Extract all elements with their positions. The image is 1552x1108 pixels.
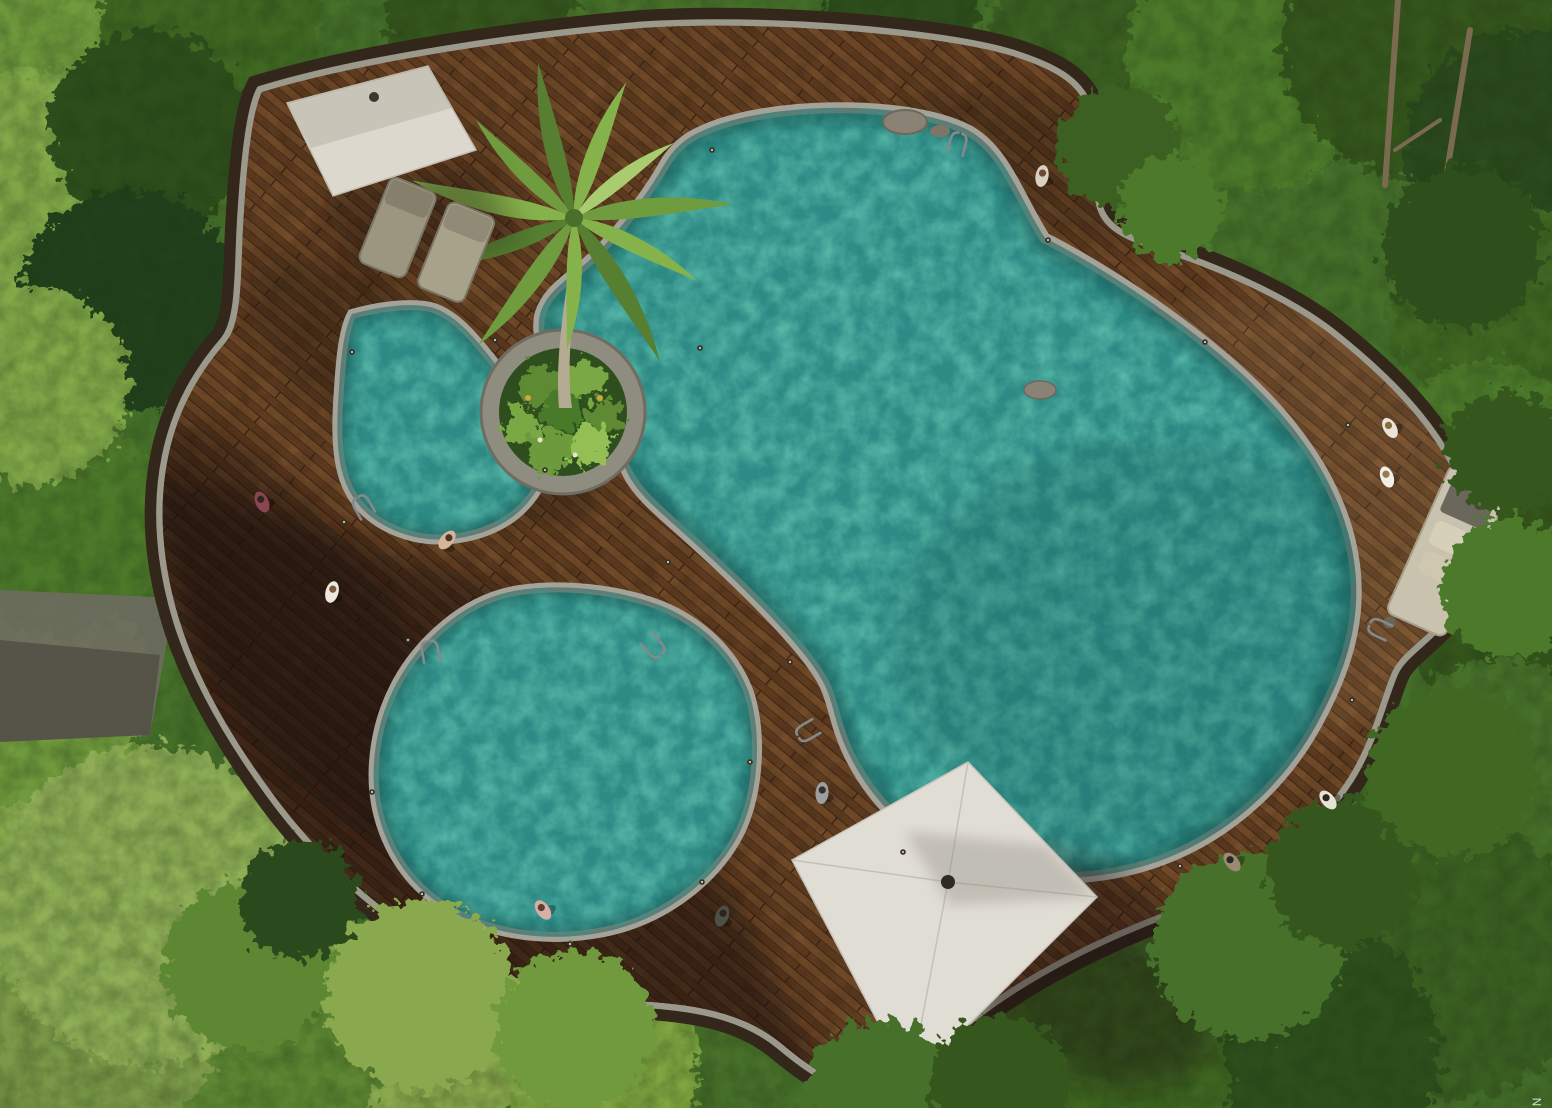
deck-spotlight bbox=[747, 759, 753, 765]
deck-spotlight bbox=[787, 659, 793, 665]
deck-spotlight bbox=[349, 349, 355, 355]
deck-spotlight bbox=[699, 879, 705, 885]
artists-impression-watermark: ARTIST'S IMPRESSION bbox=[1530, 1096, 1544, 1108]
stone-terrace-shadow bbox=[0, 640, 160, 742]
deck-spotlight bbox=[341, 519, 347, 525]
deck-spotlight bbox=[1345, 422, 1351, 428]
deck-spotlight bbox=[542, 467, 548, 473]
deck-spotlight bbox=[369, 789, 375, 795]
scene-rendering bbox=[0, 0, 1552, 1108]
deck-spotlight bbox=[1202, 339, 1208, 345]
deck-spotlight bbox=[419, 891, 425, 897]
pool-rendering-stage: ARTIST'S IMPRESSION bbox=[0, 0, 1552, 1108]
deck-spotlight bbox=[405, 637, 411, 643]
deck-spotlight bbox=[567, 941, 573, 947]
deck-spotlight bbox=[665, 559, 671, 565]
deck-spotlight bbox=[697, 345, 703, 351]
deck-spotlight bbox=[1045, 237, 1051, 243]
deck-spotlight bbox=[709, 147, 715, 153]
deck-spotlight bbox=[1349, 697, 1355, 703]
umbrella-pole-hole bbox=[941, 875, 955, 889]
deck-spotlight bbox=[900, 849, 906, 855]
canopy-pole-hole bbox=[369, 92, 379, 102]
deck-spotlight bbox=[492, 337, 498, 343]
deck-spotlight bbox=[1177, 863, 1183, 869]
